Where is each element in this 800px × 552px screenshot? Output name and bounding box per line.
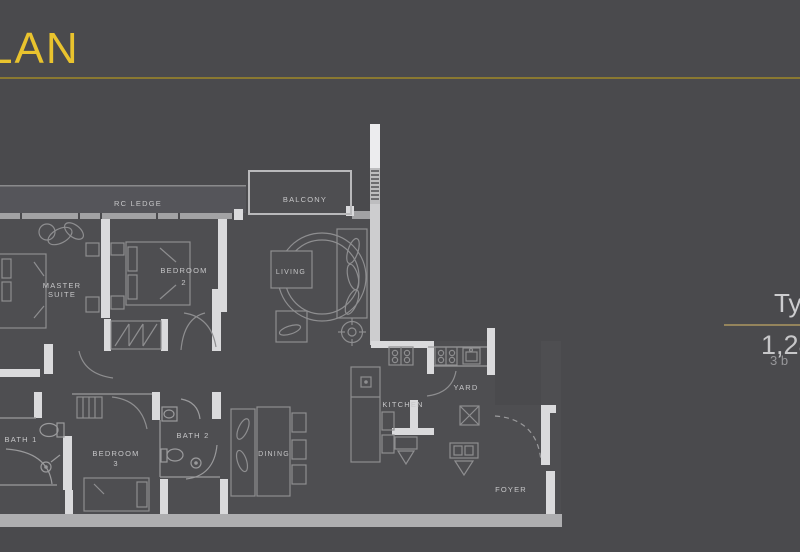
balcony-label: BALCONY — [283, 195, 327, 204]
bedroom3-label-1: BEDROOM — [92, 449, 139, 458]
master-suite-label-1: MASTER — [43, 281, 81, 290]
bedroom3-label-2: 3 — [113, 459, 118, 468]
master-suite-label-2: SUITE — [48, 290, 76, 299]
foyer-label: FOYER — [495, 485, 527, 494]
bath1-label: BATH 1 — [5, 435, 38, 444]
bedroom2-label-2: 2 — [181, 278, 186, 287]
floor-plan-drawing: BALCONY RC LEDGE MASTER SUITE — [0, 0, 800, 552]
bath2-label: BATH 2 — [177, 431, 210, 440]
rc-ledge-label: RC LEDGE — [114, 199, 162, 208]
floor-plan-page: LAN Typ 1,28 3 b — [0, 0, 800, 552]
yard-label: YARD — [453, 383, 478, 392]
bedroom2-label-1: BEDROOM — [160, 266, 207, 275]
living-label: LIVING — [276, 269, 306, 276]
kitchen-label: KITCHEN — [382, 400, 423, 409]
dining-label: DINING — [258, 451, 290, 458]
